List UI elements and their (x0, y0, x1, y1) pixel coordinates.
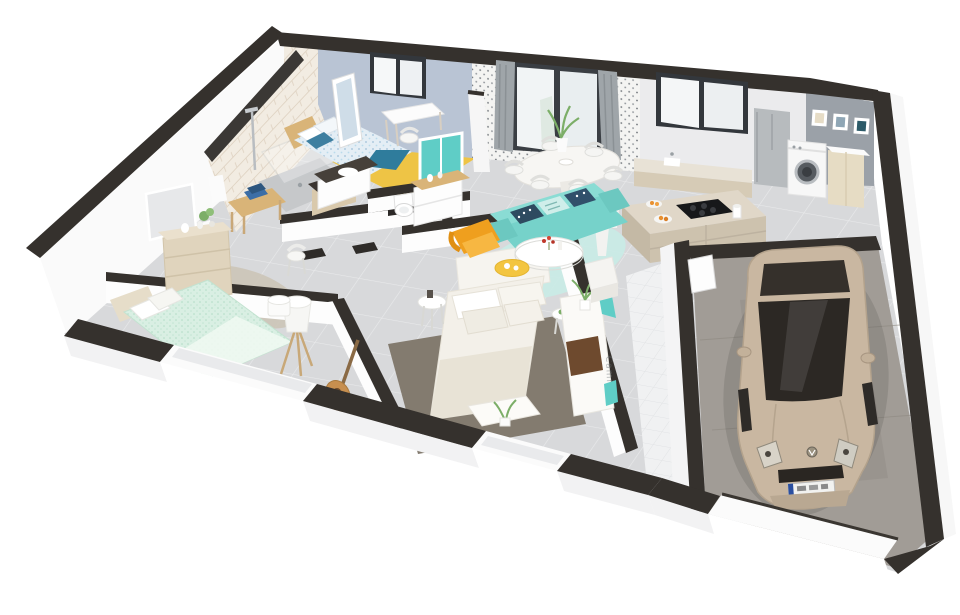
paper-towel (733, 204, 741, 218)
shower-drain (298, 183, 302, 187)
decor-vase (181, 223, 189, 233)
side-mirror (861, 353, 875, 363)
side-mirror (737, 347, 751, 357)
wc (394, 193, 413, 217)
floorplan-3d-render: Cami (0, 0, 960, 615)
kitchen-sink (664, 157, 681, 166)
garage-interior-door (688, 255, 716, 293)
centerpiece-bowl (559, 159, 573, 165)
fruit-plate (654, 215, 672, 224)
candle (558, 242, 562, 250)
round-tray (338, 168, 358, 177)
washing-machine (788, 140, 826, 198)
vase (427, 174, 433, 182)
decor-item (427, 290, 433, 298)
flowers-red (542, 239, 546, 243)
brown-throw (566, 336, 603, 376)
faucet (670, 152, 674, 156)
vase (438, 172, 443, 179)
laundry-cabinet (826, 146, 870, 208)
kitchen-window (656, 72, 748, 134)
watermark: Cami (603, 356, 614, 383)
laundry-basket (268, 296, 290, 317)
car-rear-window (760, 260, 850, 296)
side-table-yellow (495, 260, 529, 277)
car (737, 246, 878, 510)
floorplan-canvas: Cami (0, 0, 960, 615)
fruit-bowl (646, 200, 662, 208)
desk-chair (400, 133, 418, 143)
bedroom1-window (370, 52, 426, 99)
